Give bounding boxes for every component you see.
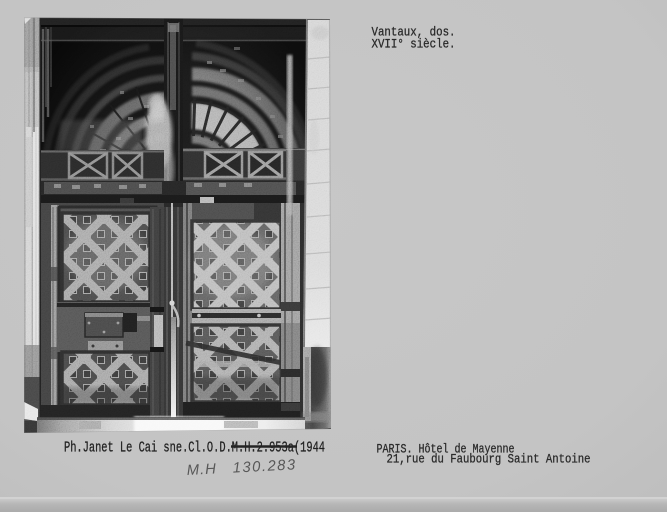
svg-text:XVII° siècle.: XVII° siècle. xyxy=(372,38,456,52)
svg-text:M.H: M.H xyxy=(186,461,217,479)
svg-text:21,rue du Faubourg Saint Antoi: 21,rue du Faubourg Saint Antoine xyxy=(387,453,591,467)
svg-text:Ph.Janet Le Cai sne.Cl.O.D.M.H: Ph.Janet Le Cai sne.Cl.O.D.M.H.2.953a(19… xyxy=(64,441,325,457)
svg-text:130.283: 130.283 xyxy=(232,457,297,476)
